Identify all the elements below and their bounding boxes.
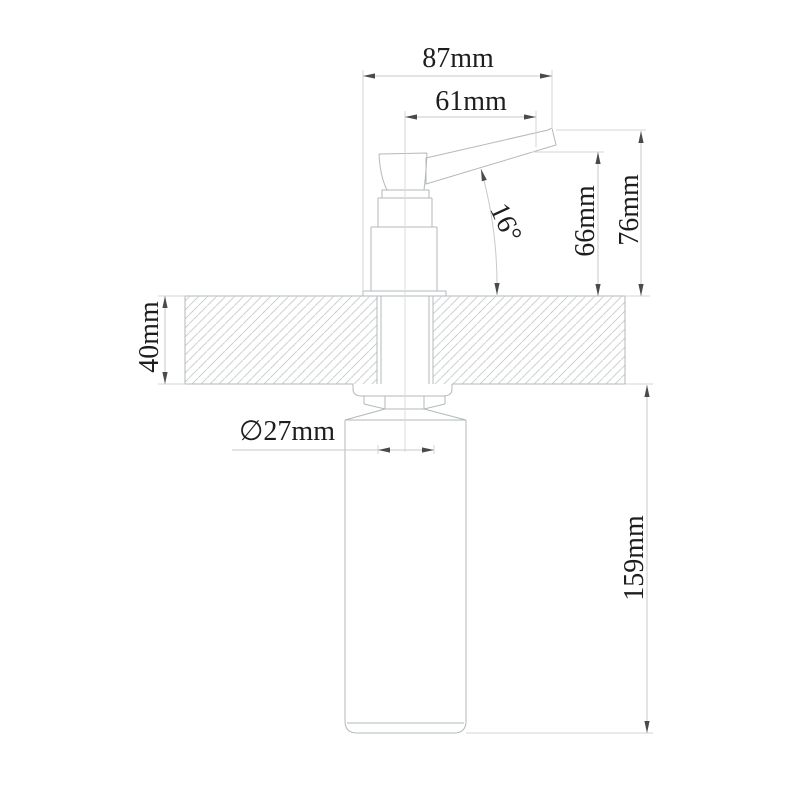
counter-hatching-left	[185, 296, 377, 384]
dim-label-spout-reach: 61mm	[435, 88, 507, 116]
dim-label-overall-width: 87mm	[422, 45, 494, 73]
dim-label-under-counter-length: 159mm	[621, 515, 649, 601]
technical-drawing-canvas: 87mm 61mm 16° 66mm 76mm 40mm ∅27mm 159mm	[0, 0, 800, 800]
drawing-linework	[0, 0, 800, 800]
dim-label-deck-thickness: 40mm	[136, 301, 164, 373]
counter-hatching-right	[433, 296, 625, 384]
dimension-arrowheads	[162, 73, 649, 733]
soap-bottle	[345, 420, 466, 733]
soap-dispenser-outline	[345, 128, 556, 733]
dimension-lines	[165, 76, 647, 733]
washer	[353, 384, 452, 396]
dim-label-spout-top-height: 76mm	[616, 174, 644, 246]
dim-label-shank-diameter: ∅27mm	[239, 418, 335, 446]
dim-label-outlet-height: 66mm	[572, 185, 600, 257]
